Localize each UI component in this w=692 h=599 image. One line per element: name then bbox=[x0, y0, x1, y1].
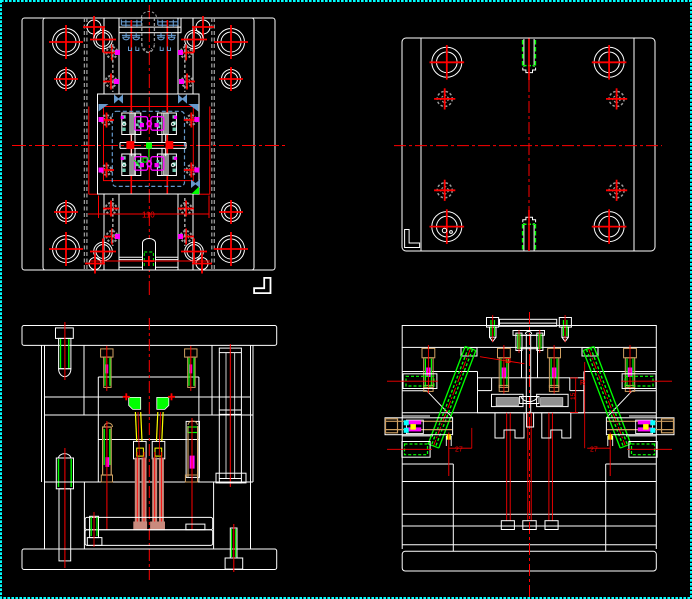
svg-text:110: 110 bbox=[142, 211, 155, 220]
svg-text:15: 15 bbox=[570, 392, 577, 400]
svg-text:27: 27 bbox=[455, 447, 463, 454]
svg-text:R: R bbox=[580, 380, 585, 387]
svg-text:27: 27 bbox=[590, 447, 598, 454]
